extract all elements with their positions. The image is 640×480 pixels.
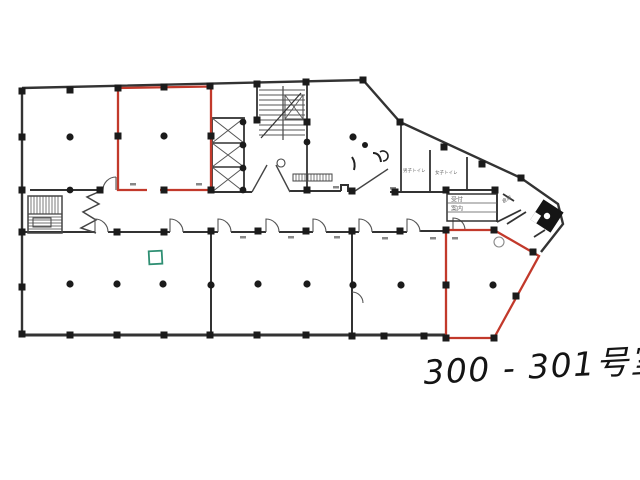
- building-outline: [22, 80, 563, 335]
- sign-text-line2: 案内: [451, 205, 463, 213]
- elevator-bank-icon: [212, 118, 244, 192]
- handwritten-room-annotation: 300 - 301号室: [422, 340, 640, 392]
- floor-plan-page: 受付 案内 男子トイレ 女子トイレ 倉庫: [0, 0, 640, 480]
- corridor-sign-box: 受付 案内: [447, 194, 497, 221]
- womens-toilet-label: 女子トイレ: [435, 169, 458, 176]
- green-marker-square: [149, 251, 163, 265]
- mens-toilet-label: 男子トイレ: [403, 167, 426, 174]
- pen-marks: [352, 151, 388, 170]
- stairs-icon: [259, 86, 305, 140]
- column-markers-dots: [66, 119, 496, 289]
- stairwell-left-icon: [28, 196, 62, 233]
- storage-label: 倉庫: [501, 194, 513, 205]
- counter-hatch: [293, 174, 332, 181]
- sign-text-line1: 受付: [451, 196, 463, 204]
- zigzag-wall: [81, 190, 103, 233]
- floor-plan-drawing: 受付 案内 男子トイレ 女子トイレ 倉庫: [0, 0, 640, 480]
- red-room-door-gap2: [147, 187, 160, 192]
